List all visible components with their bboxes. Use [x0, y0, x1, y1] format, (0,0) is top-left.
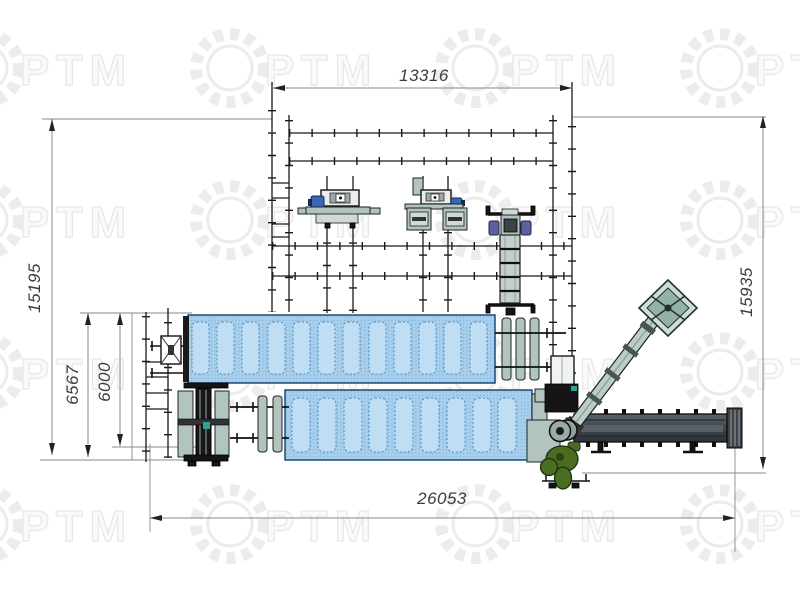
dim-bottom-label: 26053 — [416, 489, 467, 508]
dim-left-mid-label: 6567 — [63, 365, 82, 405]
dim-top-label: 13316 — [399, 66, 449, 85]
dim-left-outer-label: 15195 — [25, 263, 44, 313]
dim-left-inner-label: 6000 — [95, 362, 114, 402]
upper-drum — [150, 315, 566, 383]
motor-icon — [521, 221, 531, 235]
sensor-chip — [203, 422, 210, 429]
drum-end-flange — [183, 316, 189, 382]
dim-right-label: 15935 — [737, 267, 756, 317]
drawing-canvas: РТМ — [0, 0, 800, 600]
technical-drawing: РТМ — [0, 0, 800, 600]
drum-bearing-center — [556, 427, 564, 435]
motor-icon — [489, 221, 499, 235]
drum-drive-station — [178, 383, 229, 466]
